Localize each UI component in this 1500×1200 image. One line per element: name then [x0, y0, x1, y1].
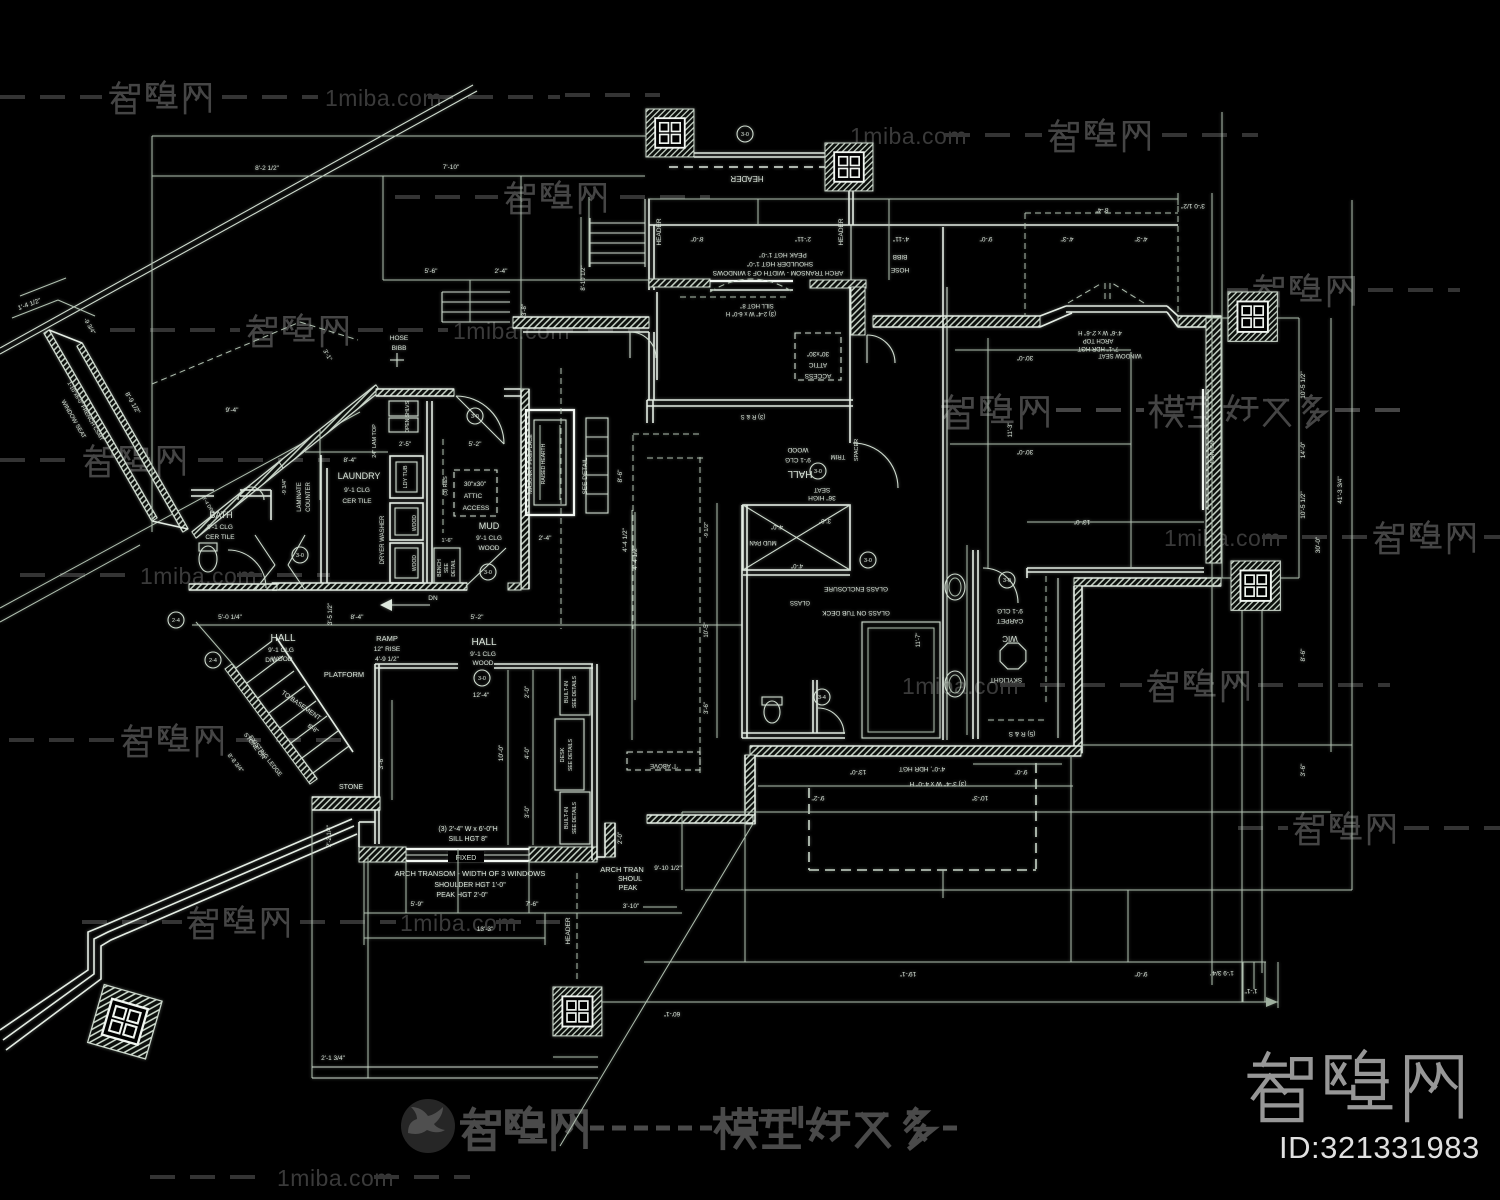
- svg-text:3'-0": 3'-0": [819, 517, 831, 523]
- svg-text:4'-3": 4'-3": [1134, 235, 1148, 242]
- svg-text:HEADER: HEADER: [656, 218, 663, 245]
- svg-text:9'-2": 9'-2": [811, 794, 825, 801]
- svg-text:3'-5 1/2": 3'-5 1/2": [328, 603, 334, 625]
- svg-text:3'-0 1/2": 3'-0 1/2": [1180, 202, 1204, 209]
- svg-text:1'-1": 1'-1": [1244, 987, 1258, 994]
- svg-text:STONE: STONE: [339, 784, 363, 791]
- svg-text:10'-0": 10'-0": [498, 744, 505, 761]
- svg-text:PEAK HGT 1'-0": PEAK HGT 1'-0": [759, 251, 807, 258]
- svg-text:RAMP: RAMP: [376, 634, 398, 643]
- svg-text:10'-5 1/2": 10'-5 1/2": [1300, 371, 1307, 399]
- svg-text:3-0: 3-0: [1003, 578, 1011, 584]
- svg-text:TRIM: TRIM: [831, 453, 846, 459]
- svg-text:(3) 2-4" W x 6-0" H: (3) 2-4" W x 6-0" H: [726, 310, 776, 316]
- svg-text:3'-8": 3'-8": [522, 304, 528, 316]
- svg-text:2'-1 3/4": 2'-1 3/4": [321, 1055, 345, 1062]
- svg-text:BIBB: BIBB: [893, 253, 908, 260]
- svg-text:30"x30": 30"x30": [464, 481, 487, 488]
- svg-text:SHOULDER HGT 1'-0": SHOULDER HGT 1'-0": [434, 882, 506, 889]
- svg-text:ATTIC: ATTIC: [464, 493, 483, 500]
- svg-text:ARCH TRAN: ARCH TRAN: [600, 865, 644, 874]
- svg-text:ACCESS: ACCESS: [804, 372, 831, 379]
- svg-text:'T' ABOVE: 'T' ABOVE: [650, 762, 678, 768]
- svg-text:DETAIL: DETAIL: [451, 559, 457, 576]
- svg-text:4'-0": 4'-0": [771, 523, 783, 529]
- svg-text:PEAK: PEAK: [619, 885, 638, 892]
- svg-text:8'-4": 8'-4": [344, 457, 358, 464]
- svg-text:LDY TUB: LDY TUB: [403, 465, 409, 488]
- svg-text:3'-0": 3'-0": [525, 806, 531, 818]
- svg-text:3'-6": 3'-6": [378, 756, 385, 770]
- svg-text:3'-6": 3'-6": [1300, 763, 1307, 777]
- svg-text:3-0: 3-0: [484, 570, 492, 576]
- svg-text:(3) 2'-4" W x 6'-0"H: (3) 2'-4" W x 6'-0"H: [438, 826, 497, 833]
- svg-text:13'-3": 13'-3": [477, 926, 494, 933]
- svg-text:41'-3 3/4": 41'-3 3/4": [1337, 476, 1344, 504]
- svg-text:WIC: WIC: [1002, 634, 1018, 643]
- svg-text:HEADER: HEADER: [565, 917, 572, 944]
- svg-text:24" LAM TOP: 24" LAM TOP: [372, 424, 378, 458]
- svg-text:10'-3": 10'-3": [971, 794, 988, 801]
- svg-text:DN: DN: [265, 657, 275, 664]
- svg-text:10'-5": 10'-5": [704, 622, 710, 637]
- svg-text:ID:321331983: ID:321331983: [1279, 1130, 1480, 1165]
- svg-text:8'-6": 8'-6": [1300, 648, 1307, 662]
- svg-text:FIXED: FIXED: [456, 855, 477, 862]
- svg-text:PLATFORM: PLATFORM: [324, 670, 364, 679]
- svg-text:WINDOW SEAT: WINDOW SEAT: [1098, 352, 1142, 358]
- svg-text:COUNTER: COUNTER: [306, 482, 312, 512]
- svg-text:(3) R&S: (3) R&S: [443, 476, 449, 496]
- svg-text:SEE DETAILS: SEE DETAILS: [572, 801, 578, 834]
- svg-text:SKYLIGHT: SKYLIGHT: [990, 676, 1022, 683]
- svg-text:SHOULDER HGT 1'-0": SHOULDER HGT 1'-0": [746, 260, 813, 267]
- svg-text:13'-0": 13'-0": [1073, 518, 1090, 525]
- svg-text:12" RISE: 12" RISE: [374, 646, 401, 653]
- svg-text:PEAK HGT 2'-0": PEAK HGT 2'-0": [436, 892, 488, 899]
- svg-text:WOOD: WOOD: [787, 446, 808, 453]
- svg-text:MUD PAN: MUD PAN: [749, 539, 776, 545]
- svg-text:9'-1 CLG: 9'-1 CLG: [997, 607, 1023, 614]
- svg-text:LAUNDRY: LAUNDRY: [338, 471, 381, 481]
- svg-text:7'-10": 7'-10": [443, 164, 460, 171]
- svg-text:BIBB: BIBB: [392, 345, 407, 352]
- svg-text:8'-10 1/2": 8'-10 1/2": [581, 265, 587, 290]
- svg-text:GLASS ENCLOSURE: GLASS ENCLOSURE: [823, 585, 888, 592]
- svg-text:2'-5": 2'-5": [399, 442, 411, 448]
- svg-text:9'-0": 9'-0": [979, 235, 993, 242]
- svg-text:5'-2": 5'-2": [469, 441, 483, 448]
- svg-text:9'-1 CLG: 9'-1 CLG: [268, 647, 294, 654]
- svg-text:4'-4 1/2": 4'-4 1/2": [622, 527, 629, 551]
- svg-text:5'-0 1/4": 5'-0 1/4": [218, 614, 242, 621]
- svg-text:OPEN SHLVS: OPEN SHLVS: [405, 401, 411, 433]
- svg-text:5'-9": 5'-9": [411, 901, 425, 908]
- svg-text:HEADER: HEADER: [838, 218, 845, 245]
- svg-text:DRYER WASHER: DRYER WASHER: [380, 515, 386, 564]
- svg-text:SHOUL: SHOUL: [618, 876, 642, 883]
- svg-text:HALL: HALL: [787, 468, 812, 479]
- svg-text:SEE DETAILS: SEE DETAILS: [568, 738, 574, 771]
- svg-text:1'-9 3/4": 1'-9 3/4": [1209, 969, 1233, 976]
- svg-text:11'-7": 11'-7": [916, 633, 922, 648]
- svg-text:1'-6": 1'-6": [442, 538, 453, 544]
- svg-text:ATTIC: ATTIC: [809, 361, 828, 368]
- svg-text:3-0: 3-0: [296, 553, 304, 559]
- svg-text:BENCH: BENCH: [437, 559, 443, 577]
- svg-text:5'-2": 5'-2": [471, 614, 485, 621]
- svg-text:3'-10": 3'-10": [623, 903, 640, 910]
- svg-text:ARCH TOP: ARCH TOP: [1083, 337, 1114, 343]
- svg-text:ARCH TRANSOM - WIDTH OF 3 WIND: ARCH TRANSOM - WIDTH OF 3 WINDOWS: [395, 869, 546, 878]
- svg-text:4'-0": 4'-0": [525, 747, 531, 759]
- svg-text:WOOD: WOOD: [272, 656, 293, 663]
- svg-text:2-4: 2-4: [172, 618, 180, 624]
- svg-text:14'-0": 14'-0": [1300, 441, 1307, 458]
- svg-text:30'-0": 30'-0": [1016, 354, 1033, 361]
- svg-text:HOSE: HOSE: [890, 266, 909, 273]
- svg-text:WOOD: WOOD: [412, 555, 418, 571]
- svg-text:ARCH TRANSOM - WIDTH OF 3 WIND: ARCH TRANSOM - WIDTH OF 3 WINDOWS: [712, 269, 843, 276]
- svg-text:4'-0", HDR HGT: 4'-0", HDR HGT: [899, 765, 945, 772]
- svg-text:8'-4": 8'-4": [351, 614, 365, 621]
- svg-text:13'-0": 13'-0": [849, 768, 866, 775]
- svg-text:3-0: 3-0: [471, 414, 479, 420]
- svg-text:HEADER: HEADER: [730, 174, 764, 183]
- svg-text:(3) 3'-4" W x 4'-0" H: (3) 3'-4" W x 4'-0" H: [909, 780, 966, 787]
- svg-text:CARPET: CARPET: [997, 617, 1023, 624]
- svg-text:9'-0": 9'-0": [1014, 768, 1028, 775]
- svg-text:2'-4": 2'-4": [539, 535, 553, 542]
- svg-text:SILL HGT 8": SILL HGT 8": [448, 836, 488, 843]
- svg-text:HALL: HALL: [471, 637, 496, 648]
- svg-text:2-4: 2-4: [209, 658, 217, 664]
- svg-text:2'-0": 2'-0": [525, 686, 531, 698]
- svg-text:3-0: 3-0: [864, 558, 872, 564]
- svg-text:DESK: DESK: [560, 747, 566, 762]
- svg-text:4'-3": 4'-3": [1060, 235, 1074, 242]
- svg-text:GLASS ON TUB DECK: GLASS ON TUB DECK: [821, 609, 889, 616]
- svg-text:19'-1": 19'-1": [899, 970, 916, 977]
- svg-text:WOOD: WOOD: [479, 545, 500, 552]
- svg-text:WOOD: WOOD: [412, 515, 418, 531]
- svg-text:4'-4 1/2": 4'-4 1/2": [632, 545, 639, 569]
- svg-text:CER TILE: CER TILE: [205, 534, 235, 541]
- svg-text:2'-0": 2'-0": [618, 832, 624, 844]
- svg-text:DN: DN: [428, 595, 438, 602]
- svg-text:30"x30": 30"x30": [806, 350, 829, 357]
- svg-text:3-0: 3-0: [741, 132, 749, 138]
- svg-text:3-0: 3-0: [814, 469, 822, 475]
- svg-text:36" HIGH: 36" HIGH: [808, 494, 836, 501]
- svg-text:8'-6": 8'-6": [617, 469, 624, 483]
- svg-text:(3) R & S: (3) R & S: [741, 413, 766, 419]
- svg-text:9'-1 CLG: 9'-1 CLG: [785, 456, 811, 463]
- svg-text:SILL HGT 8": SILL HGT 8": [740, 302, 773, 308]
- svg-text:RAISED HEARTH: RAISED HEARTH: [541, 443, 547, 484]
- svg-text:SEE: SEE: [444, 562, 450, 573]
- svg-text:CER TILE: CER TILE: [342, 498, 372, 505]
- svg-text:11'-3": 11'-3": [1008, 423, 1014, 438]
- svg-text:3-0: 3-0: [478, 676, 486, 682]
- svg-text:MUD: MUD: [479, 521, 500, 531]
- svg-text:9'-10 1/2": 9'-10 1/2": [654, 865, 682, 872]
- svg-text:9'-1 CLG: 9'-1 CLG: [207, 524, 233, 531]
- svg-text:(5) R & S: (5) R & S: [1008, 730, 1035, 737]
- svg-text:9'-1 CLG: 9'-1 CLG: [476, 535, 502, 542]
- svg-text:5'-6": 5'-6": [425, 268, 439, 275]
- svg-text:3'-6": 3'-6": [704, 702, 710, 714]
- svg-text:1miba.com: 1miba.com: [325, 85, 442, 111]
- svg-text:WOOD: WOOD: [473, 660, 494, 667]
- svg-text:MASONRY FIREPLACE: MASONRY FIREPLACE: [528, 434, 534, 494]
- svg-text:12'-4": 12'-4": [473, 692, 490, 699]
- svg-text:30'-0": 30'-0": [1315, 536, 1322, 553]
- svg-text:-9 3/4": -9 3/4": [282, 479, 288, 495]
- svg-text:9'-1 CLG: 9'-1 CLG: [344, 487, 370, 494]
- svg-text:EGRESS: EGRESS: [1210, 440, 1216, 463]
- svg-text:ACCESS: ACCESS: [463, 505, 490, 512]
- svg-text:4'-9 1/2": 4'-9 1/2": [375, 656, 399, 663]
- svg-text:3-4: 3-4: [818, 695, 826, 701]
- svg-text:SEAT: SEAT: [814, 486, 831, 493]
- svg-text:9'-4": 9'-4": [226, 407, 240, 414]
- svg-text:BUILT-IN: BUILT-IN: [564, 681, 570, 703]
- svg-text:SPACER: SPACER: [854, 439, 860, 461]
- svg-text:GLASS: GLASS: [790, 599, 810, 605]
- svg-text:HOSE: HOSE: [390, 335, 409, 342]
- svg-text:8'-2 1/2": 8'-2 1/2": [255, 165, 279, 172]
- svg-text:2'-11": 2'-11": [794, 235, 811, 242]
- svg-text:-9 1/2": -9 1/2": [704, 522, 710, 538]
- svg-text:2'-2 1/4": 2'-2 1/4": [327, 825, 333, 847]
- svg-text:HALL: HALL: [270, 633, 295, 644]
- svg-text:9'-1 CLG: 9'-1 CLG: [470, 651, 496, 658]
- svg-text:9'-0": 9'-0": [1134, 970, 1148, 977]
- svg-text:SEE DETAILS: SEE DETAILS: [572, 675, 578, 708]
- svg-text:LAMINATE: LAMINATE: [297, 482, 303, 512]
- svg-text:7'-6": 7'-6": [526, 901, 540, 908]
- svg-text:4'-0": 4'-0": [791, 562, 803, 568]
- svg-text:30'-0": 30'-0": [1016, 448, 1033, 455]
- svg-text:60'-1": 60'-1": [663, 1010, 680, 1017]
- svg-text:8'-4": 8'-4": [1095, 206, 1109, 213]
- svg-text:4'-11": 4'-11": [892, 235, 909, 242]
- svg-text:10'-5 1/2": 10'-5 1/2": [1300, 491, 1307, 519]
- svg-text:8'-0": 8'-0": [690, 235, 704, 242]
- svg-text:4'-6" W x 2'-6" H: 4'-6" W x 2'-6" H: [1078, 329, 1122, 335]
- svg-text:BUILT-IN: BUILT-IN: [564, 807, 570, 829]
- svg-text:2'-4": 2'-4": [495, 268, 509, 275]
